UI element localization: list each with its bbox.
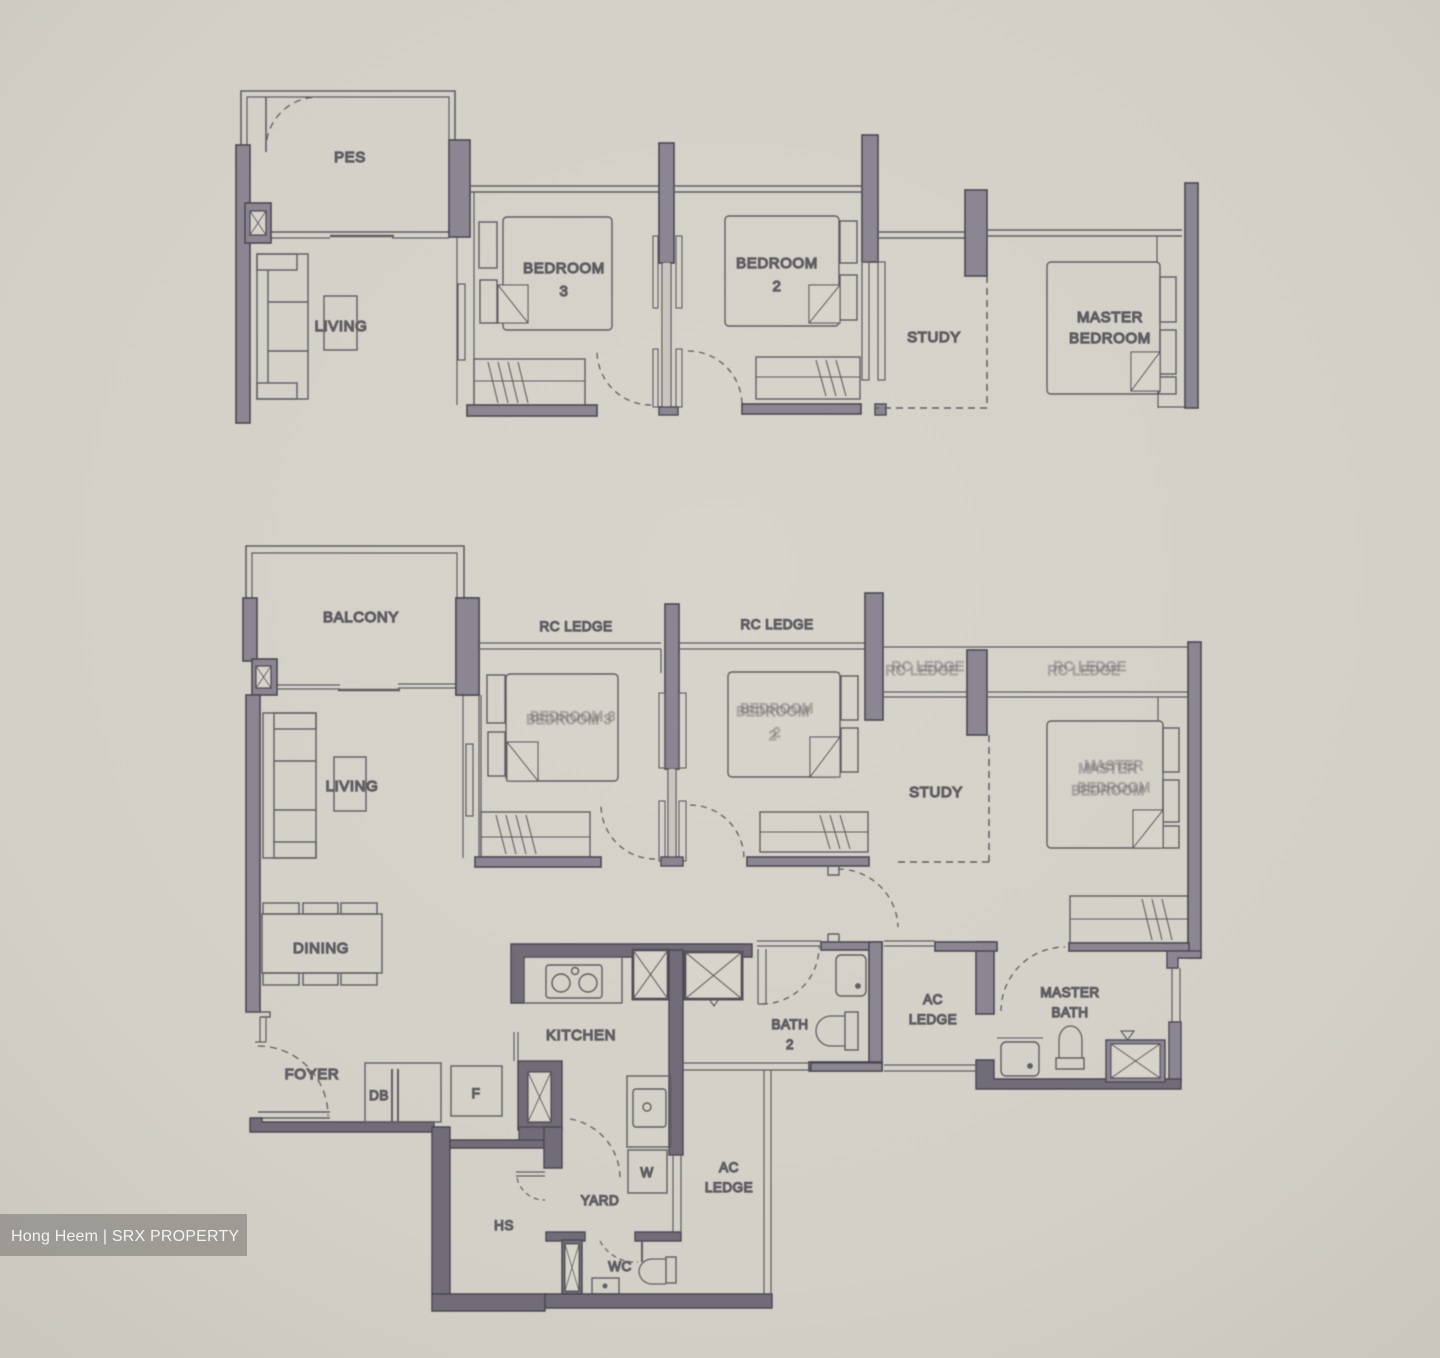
svg-text:2: 2 <box>786 1037 794 1052</box>
svg-text:FOYER: FOYER <box>285 1066 340 1083</box>
svg-text:F: F <box>472 1086 481 1101</box>
svg-text:MASTER: MASTER <box>1084 758 1143 773</box>
svg-text:AC: AC <box>719 1160 739 1175</box>
svg-text:BEDROOM: BEDROOM <box>736 255 818 272</box>
svg-text:RC LEDGE: RC LEDGE <box>539 619 612 634</box>
svg-text:WC: WC <box>608 1259 632 1274</box>
svg-text:DINING: DINING <box>293 940 349 957</box>
svg-text:W: W <box>640 1165 653 1180</box>
svg-text:BEDROOM 3: BEDROOM 3 <box>530 709 616 724</box>
svg-text:PES: PES <box>334 149 366 166</box>
svg-text:BATH: BATH <box>1051 1005 1088 1020</box>
svg-text:LIVING: LIVING <box>315 318 368 335</box>
svg-text:LEDGE: LEDGE <box>909 1012 957 1027</box>
svg-text:RC LEDGE: RC LEDGE <box>1053 659 1126 674</box>
svg-text:2: 2 <box>773 278 782 295</box>
svg-text:BEDROOM: BEDROOM <box>1077 780 1150 795</box>
svg-text:HS: HS <box>494 1218 514 1233</box>
svg-text:MASTER: MASTER <box>1077 309 1143 326</box>
svg-text:Hong Heem | SRX PROPERTY: Hong Heem | SRX PROPERTY <box>11 1228 239 1245</box>
svg-text:YARD: YARD <box>581 1193 620 1208</box>
svg-text:BEDROOM: BEDROOM <box>523 260 605 277</box>
svg-text:AC: AC <box>923 992 943 1007</box>
svg-text:BEDROOM: BEDROOM <box>1069 330 1151 347</box>
svg-text:DB: DB <box>369 1088 389 1103</box>
svg-text:BEDROOM: BEDROOM <box>740 701 813 716</box>
svg-text:STUDY: STUDY <box>907 329 961 346</box>
svg-text:RC LEDGE: RC LEDGE <box>740 617 813 632</box>
svg-text:BALCONY: BALCONY <box>323 609 399 626</box>
svg-text:2: 2 <box>773 725 781 740</box>
svg-text:BATH: BATH <box>771 1017 808 1032</box>
svg-text:MASTER: MASTER <box>1040 985 1099 1000</box>
svg-text:3: 3 <box>560 283 569 300</box>
svg-text:STUDY: STUDY <box>909 784 963 801</box>
svg-text:RC LEDGE: RC LEDGE <box>891 659 964 674</box>
svg-text:KITCHEN: KITCHEN <box>546 1027 616 1044</box>
svg-text:LEDGE: LEDGE <box>705 1180 753 1195</box>
